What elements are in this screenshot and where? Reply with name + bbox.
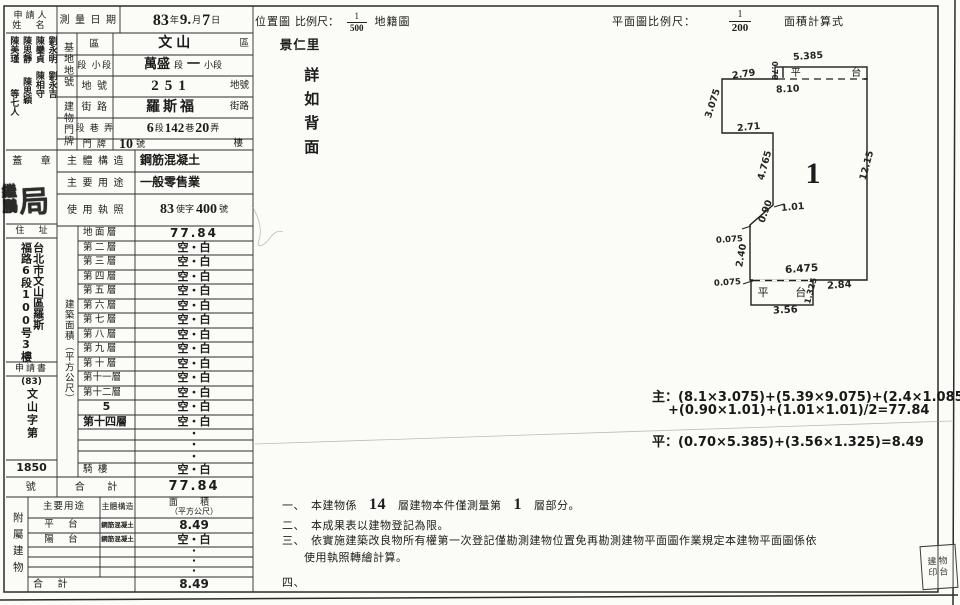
attached-column-label: 附屬建物	[7, 500, 27, 589]
section-suffix: 小段	[204, 61, 222, 71]
floor-row-label: 第 五 層	[78, 284, 135, 299]
door-unit: 號	[136, 140, 145, 150]
date-day: 7	[202, 12, 210, 30]
lane-section-no: 6	[147, 121, 154, 136]
dim-bottom-right: 2.84	[827, 279, 852, 292]
platform-bottom-label: 平 台	[755, 285, 811, 301]
applicant-names: 陳美瑾等七人 陳思靜陳思穎 陳鑾貞陳相守 劉永明劉永吉	[6, 33, 57, 150]
date-month: 9.	[180, 12, 191, 29]
corner-seal-line2: 印台	[928, 566, 951, 578]
structure-value: 鋼筋混凝土	[135, 150, 253, 172]
floor-row-label: 第十一層	[78, 371, 135, 386]
attached-row-area: 8.49	[135, 518, 253, 533]
arcade-row-value: 空・白	[135, 463, 253, 477]
section-value: 萬盛 段 一 小段	[113, 55, 253, 76]
attached-row-structure: 鋼筋混凝土	[100, 533, 135, 547]
district-name: 文山	[113, 36, 239, 51]
note-1-bullet: 一、	[282, 497, 305, 513]
note-1-post: 層部分。	[534, 497, 580, 513]
floor-row-value: 空・白	[135, 400, 253, 415]
main-area-formula-line2: +(0.90×1.01)+(1.01×1.01)/2=77.84	[668, 403, 929, 418]
seal-dense-glyphs: 繼鵬	[1, 185, 18, 216]
floor-row-label: 地 面 層	[78, 226, 135, 241]
floor-row-value: 空・白	[135, 299, 253, 313]
floor-row-value: 空・白	[135, 270, 253, 284]
lot-value: 251 地號	[113, 76, 253, 97]
section-dash: 一	[187, 58, 200, 72]
section-mid: 段	[174, 61, 183, 71]
floor-row-value: 空・白	[135, 357, 253, 371]
date-day-unit: 日	[211, 16, 220, 26]
floor-row-value: 空・白	[135, 371, 253, 386]
applicant-label-2: 姓 名	[12, 21, 50, 31]
district-suffix: 區	[239, 39, 253, 49]
note-4: 四、	[282, 574, 311, 590]
floor-row-label: 第 九 層	[78, 342, 135, 357]
lane-no: 142	[165, 121, 185, 135]
floor-row-value: 空・白	[135, 241, 253, 255]
area-calc-label: 面積計算式	[784, 16, 844, 28]
lane-label: 段 巷 弄	[77, 118, 113, 139]
attached-total-value: 8.49	[135, 577, 253, 592]
usage-label: 主 要 用 途	[57, 172, 135, 194]
corner-seal: 建物 印台	[920, 544, 959, 590]
note-3-text-2: 使用執照轉繪計算。	[304, 549, 408, 565]
alley-no: 20	[195, 121, 209, 136]
floor-row-dot: ・	[135, 440, 253, 451]
scanned-survey-form: 申請人 姓 名 陳美瑾等七人 陳思靜陳思穎 陳鑾貞陳相守 劉永明劉永吉 測 量 …	[0, 0, 960, 605]
floor-row-value: 空・白	[135, 313, 253, 328]
plan-scale-fraction: 1200	[704, 9, 776, 34]
floor-row-value: 空・白	[135, 386, 253, 400]
floor-row-dot: ・	[135, 451, 253, 463]
note-2: 二、 本成果表以建物登記為限。	[282, 517, 449, 533]
date-year-unit: 年	[170, 16, 179, 26]
dim-top: 5.385	[793, 50, 824, 63]
floor-row-label: 第 四 層	[78, 270, 135, 284]
note-1-surveyed-floor: 1	[514, 496, 523, 514]
floor-row-value: 空・白	[135, 328, 253, 342]
note-1-pre: 本建物係	[311, 497, 357, 513]
note-3-text-1: 依實施建築改良物所有權第一次登記僅勘測建物位置免再勘測建物平面圖作業規定本建物平…	[311, 532, 817, 548]
date-month-unit: 月	[192, 16, 201, 26]
village-label: 景仁里	[278, 38, 322, 54]
platform-top-label: 平 台	[795, 67, 861, 79]
plan-scale-header: 平面圖比例尺： 1200 面積計算式	[612, 6, 872, 38]
structure-label: 主 體 構 造	[57, 150, 135, 172]
location-map-label: 位置圖	[255, 16, 291, 28]
license-value: 83 使字 400 號	[135, 194, 253, 226]
section-label: 段 小段	[77, 55, 113, 76]
applicant-name-col: 劉永明劉永吉	[46, 36, 56, 98]
door-floor-suffix: 樓	[233, 139, 247, 149]
floor-row-label: 第 十 層	[78, 357, 135, 371]
floor-row-label: 第 二 層	[78, 241, 135, 255]
street-suffix: 街路	[230, 102, 253, 112]
license-year: 83	[160, 202, 174, 217]
lane-value: 6 段 142 巷 20 弄	[113, 118, 253, 139]
floor-total-label: 合 計	[57, 477, 135, 497]
floor-row-value: 空・白	[135, 342, 253, 357]
floor-row-value: 空・白	[135, 284, 253, 299]
dim-platform-bottom: 3.56	[773, 304, 798, 316]
license-word: 使字	[176, 205, 194, 215]
floor-row-label: 第 八 層	[78, 328, 135, 342]
floor-row-value: 空・白	[135, 415, 253, 429]
dim-diag-tick: 1.01	[781, 201, 805, 214]
attached-row-structure: 鋼筋混凝土	[100, 518, 135, 533]
floor-row-label-handwritten: 5	[78, 400, 135, 415]
location-map-header: 位置圖 比例尺： 1500 地籍圖	[255, 8, 465, 36]
floor-row-label: 第 六 層	[78, 299, 135, 313]
application-number-suffix: 號	[6, 477, 57, 497]
see-back-note: 詳如背面	[301, 56, 321, 174]
plate-group-label: 建物門牌	[58, 99, 76, 148]
lot-suffix: 地號	[230, 81, 253, 91]
floor-row-dot: ・	[135, 429, 253, 440]
license-number: 400	[196, 202, 217, 217]
door-label: 門 牌	[77, 139, 113, 150]
lot-number: 251	[113, 78, 230, 95]
applicant-name-col: 陳鑾貞陳相守	[33, 36, 43, 98]
note-1: 一、 本建物係 14 層建物本件僅測量第 1 層部分。	[282, 496, 580, 514]
usage-value: 一般零售業	[135, 172, 253, 194]
note-1-mid: 層建物本件僅測量第	[398, 497, 502, 513]
note-3-line2: 使用執照轉繪計算。	[304, 549, 408, 565]
residence-address: 台北市文山區羅斯 福路6段100号3樓	[6, 238, 57, 362]
plan-scale-label: 平面圖比例尺：	[612, 16, 696, 28]
attached-header-area-2: （平方公尺）	[170, 508, 218, 517]
alley-unit: 弄	[210, 124, 219, 134]
location-scale-label: 比例尺：	[295, 16, 339, 28]
attached-row-use: 平 台	[28, 518, 100, 533]
application-number: 1850	[6, 460, 57, 477]
applicant-header: 申請人 姓 名	[6, 8, 57, 33]
section-name: 萬盛	[144, 58, 170, 72]
note-3-line1: 三、 依實施建築改良物所有權第一次登記僅勘測建物位置免再勘測建物平面圖作業規定本…	[282, 532, 817, 548]
note-1-floor-count: 14	[369, 496, 386, 514]
survey-date-label: 測 量 日 期	[57, 8, 120, 33]
applicant-name-col: 陳思靜陳思穎	[20, 36, 30, 104]
date-year: 83	[153, 12, 169, 30]
application-code-chars: 文山字第	[25, 388, 37, 440]
license-label: 使 用 執 照	[57, 194, 135, 226]
floor-row-label: 第 三 層	[78, 255, 135, 270]
street-value: 羅斯福 街路	[113, 97, 253, 118]
seal-big-glyph: 局	[18, 176, 50, 222]
lane-unit: 巷	[185, 124, 194, 134]
note-2-text: 本成果表以建物登記為限。	[311, 517, 449, 533]
cadastral-map-label: 地籍圖	[375, 16, 411, 28]
street-label: 街 路	[77, 97, 113, 118]
attached-header-area: 面 積 （平方公尺）	[135, 497, 253, 518]
floor-total-value: 77.84	[135, 477, 253, 497]
door-value: 10 號 樓	[113, 139, 253, 150]
applicant-name-col: 陳美瑾等七人	[7, 36, 17, 116]
dim-bottom-inner: 6.475	[785, 262, 819, 276]
floor-row-value: 空・白	[135, 255, 253, 270]
attached-row-dot: ・	[135, 567, 253, 577]
application-label: 申請書	[6, 362, 57, 376]
plan-unit-number: 1	[800, 156, 826, 190]
floor-row-label: 第 七 層	[78, 313, 135, 328]
location-scale-fraction: 1500	[347, 11, 367, 33]
site-group-label: 基地地號	[58, 35, 76, 95]
district-label: 區	[77, 33, 113, 55]
attached-row-use: 陽 台	[28, 533, 100, 547]
attached-header-use: 主要用途	[28, 497, 100, 518]
district-value: 文山 區	[113, 33, 253, 55]
floor-row-value: 77.84	[135, 226, 253, 241]
dim-platform-left: 0.70	[770, 61, 779, 80]
license-suffix: 號	[219, 205, 228, 215]
dim-inner-top: 8.10	[776, 83, 800, 95]
floor-row-label-handwritten: 第十四層	[78, 415, 135, 429]
official-seal-stamp: 繼鵬 局	[0, 166, 65, 231]
residence-address-text: 台北市文山區羅斯 福路6段100号3樓	[19, 242, 43, 360]
attached-header-structure: 主體構造	[100, 497, 135, 518]
note-3-bullet: 三、	[282, 532, 305, 548]
lane-section-unit: 段	[155, 124, 164, 134]
note-4-bullet: 四、	[282, 574, 305, 590]
note-2-bullet: 二、	[282, 517, 305, 533]
arcade-row-label: 騎 樓	[78, 463, 135, 477]
attached-total-label: 合 計	[28, 577, 100, 592]
floor-area-column-label: 建築面積（平方公尺）	[58, 230, 77, 473]
attached-row-area: 空・白	[135, 533, 253, 547]
street-name: 羅斯福	[113, 100, 230, 115]
platform-area-formula: 平：(0.70×5.385)+(3.56×1.325)=8.49	[652, 431, 924, 450]
lot-label: 地 號	[77, 76, 113, 97]
dim-offset-lower: 0.075	[714, 277, 742, 289]
application-code-year: (83)	[21, 378, 42, 388]
survey-date-value: 83 年 9. 月 7 日	[120, 8, 253, 33]
floor-row-label: 第十二層	[78, 386, 135, 400]
application-code: (83) 文山字第	[6, 376, 57, 460]
